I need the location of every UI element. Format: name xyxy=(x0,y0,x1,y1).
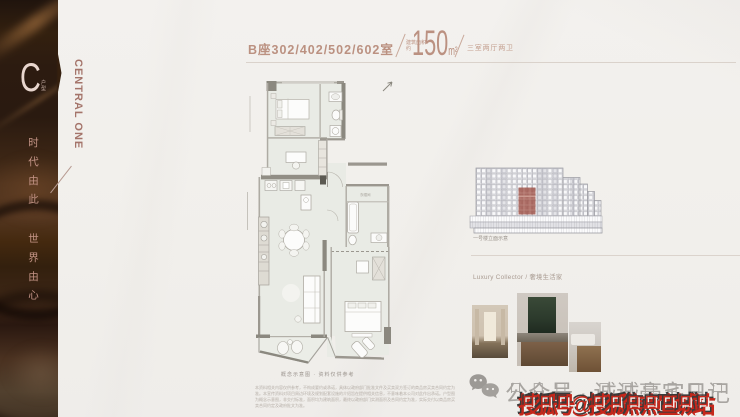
svg-text:衣帽间: 衣帽间 xyxy=(360,192,371,197)
